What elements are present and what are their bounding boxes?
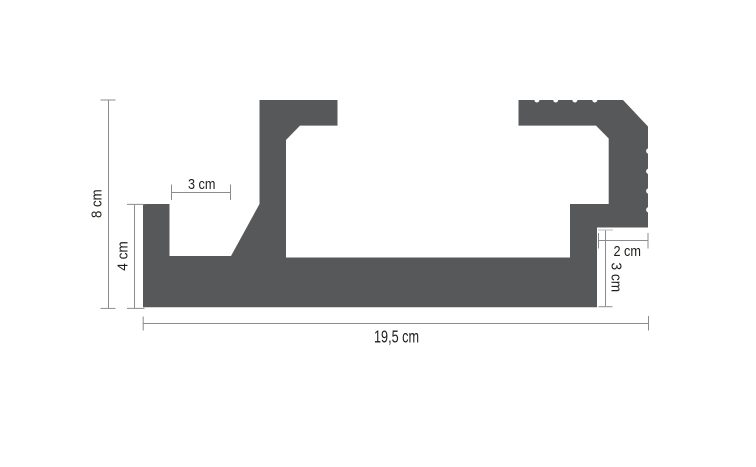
svg-text:19,5 cm: 19,5 cm [374, 326, 419, 346]
svg-text:2 cm: 2 cm [613, 243, 641, 260]
svg-text:8 cm: 8 cm [89, 189, 106, 218]
svg-text:3 cm: 3 cm [608, 263, 625, 293]
svg-text:4 cm: 4 cm [114, 241, 131, 271]
svg-text:3 cm: 3 cm [188, 176, 216, 193]
